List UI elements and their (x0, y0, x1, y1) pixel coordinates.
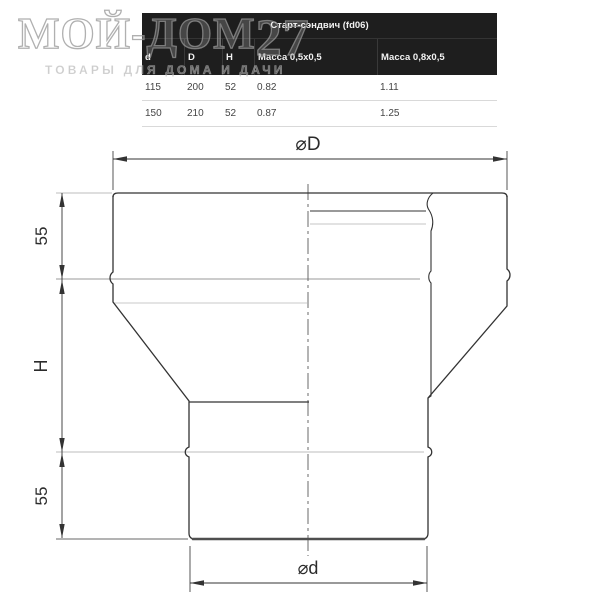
outline-left-profile (110, 196, 195, 539)
col-header-mass-08: Масса 0,8x0,5 (377, 39, 497, 75)
arrow-up-icon (59, 193, 64, 207)
cell-mass-08: 1.11 (377, 75, 497, 100)
outline-right-profile (422, 196, 510, 539)
dim-label-bottom-diameter: ⌀d (298, 558, 319, 578)
dim-label-height-H: H (31, 360, 51, 373)
arrow-right-icon (493, 156, 507, 162)
arrow-up-icon (59, 453, 64, 467)
cell-H: 52 (222, 101, 254, 126)
spec-table: Старт-сэндвич (fd06) d D H Масса 0,5x0,5… (142, 13, 497, 127)
cell-D: 210 (184, 101, 222, 126)
product-drawing-page: МОЙ-ДОМ27 ТОВАРЫ ДЛЯ ДОМА И ДАЧИ Старт-с… (0, 0, 600, 600)
col-header-D: D (184, 39, 222, 75)
cell-mass-08: 1.25 (377, 101, 497, 126)
arrow-down-icon (59, 438, 64, 452)
cell-d: 150 (142, 101, 184, 126)
arrow-down-icon (59, 524, 64, 538)
arrow-left-icon (113, 156, 127, 162)
dim-label-top-55: 55 (32, 227, 51, 246)
spec-table-title: Старт-сэндвич (fd06) (142, 13, 497, 38)
outline-top-edge (113, 193, 507, 197)
inner-pipe-edge-with-break (427, 193, 433, 398)
cell-mass-05: 0.82 (254, 75, 377, 100)
dim-label-top-diameter: ⌀D (295, 134, 320, 155)
arrow-up-icon (59, 280, 64, 294)
arrow-right-icon (413, 580, 427, 586)
arrow-down-icon (59, 265, 64, 279)
col-header-H: H (222, 39, 254, 75)
table-row: 150 210 52 0.87 1.25 (142, 101, 497, 127)
cell-H: 52 (222, 75, 254, 100)
cell-D: 200 (184, 75, 222, 100)
col-header-d: d (142, 39, 184, 75)
spec-table-header: d D H Масса 0,5x0,5 Масса 0,8x0,5 (142, 38, 497, 75)
cell-d: 115 (142, 75, 184, 100)
dim-label-bottom-55: 55 (32, 487, 51, 506)
col-header-mass-05: Масса 0,5x0,5 (254, 39, 377, 75)
cell-mass-05: 0.87 (254, 101, 377, 126)
arrow-left-icon (190, 580, 204, 586)
table-row: 115 200 52 0.82 1.11 (142, 75, 497, 101)
